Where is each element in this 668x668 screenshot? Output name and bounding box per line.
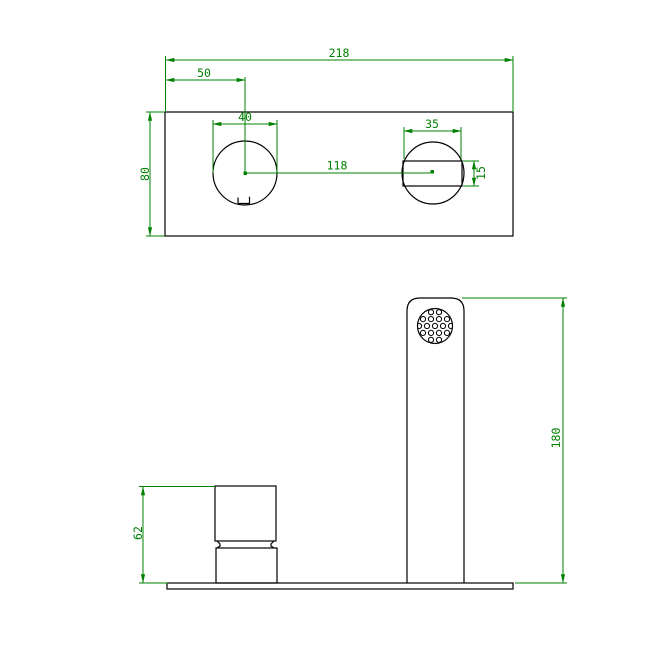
dim-plate-depth: 80 — [138, 112, 165, 236]
plan-dimensions: 218 50 40 118 35 — [138, 46, 513, 236]
dim-spout-hole-width: 35 — [404, 117, 461, 159]
aerator-face — [418, 309, 453, 344]
technical-drawing-faucet: 218 50 40 118 35 — [0, 0, 668, 668]
dim-overall-width: 218 — [166, 46, 514, 112]
dim-handle-height: 62 — [131, 487, 215, 584]
dim-label-overall-width: 218 — [329, 46, 350, 60]
dim-label-handle-hole: 40 — [238, 110, 252, 124]
dim-label-plate-depth: 80 — [138, 167, 152, 181]
spout-body — [407, 298, 464, 583]
dim-handle-offset: 50 — [166, 66, 245, 173]
elevation-dimensions: 62 180 — [131, 298, 567, 583]
dim-label-slot-height: 15 — [474, 166, 488, 180]
dim-label-spout-height: 180 — [549, 428, 563, 449]
handle-groove-left — [217, 541, 220, 548]
base-plate — [167, 583, 513, 589]
dim-label-spout-hole-width: 35 — [425, 117, 439, 131]
dim-label-handle-offset: 50 — [197, 66, 211, 80]
handle-groove-right — [271, 541, 274, 548]
dim-slot-height: 15 — [463, 161, 488, 186]
dim-label-handle-height: 62 — [131, 526, 145, 540]
handle-knob — [215, 486, 276, 541]
dim-label-center-distance: 118 — [327, 159, 348, 173]
handle-base — [216, 548, 277, 583]
dim-spout-height: 180 — [462, 298, 567, 583]
keyway-notch-mask — [237, 196, 250, 204]
elevation-view — [167, 298, 513, 589]
